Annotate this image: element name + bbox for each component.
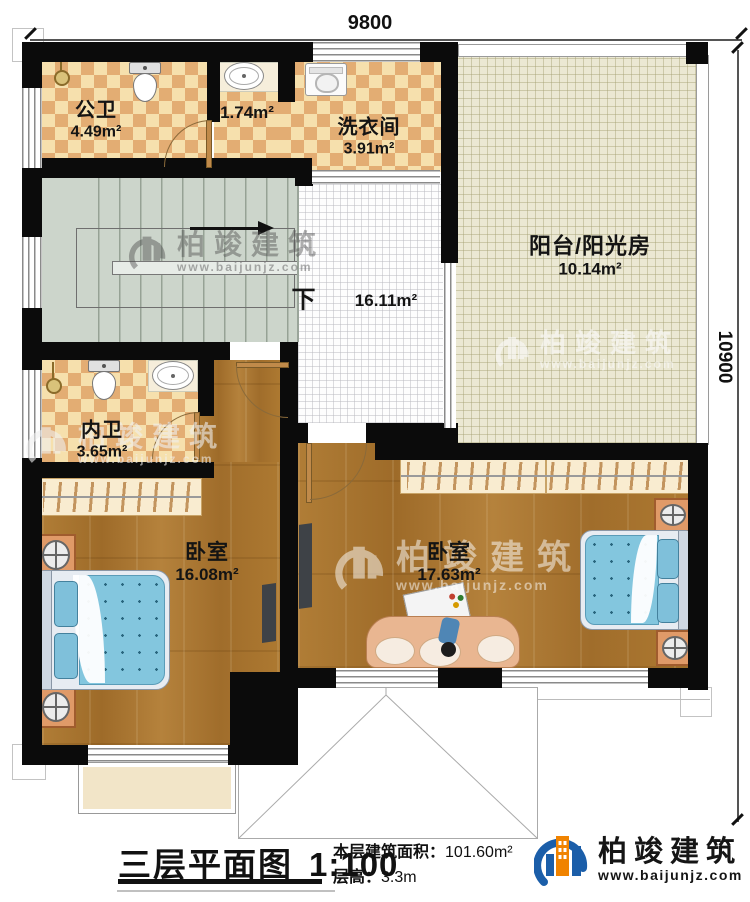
nightstand-bedroom-right-1 [654, 498, 692, 532]
room-label-balcony: 阳台/阳光房 10.14m² [529, 234, 651, 281]
wall-bedroom-right-side [688, 443, 708, 690]
room-area: 1.74m² [220, 103, 274, 123]
room-area: 3.91m² [338, 139, 401, 158]
title-underline-thin [117, 890, 335, 892]
window-public-bath [22, 88, 42, 168]
slider-hall-balcony [444, 263, 456, 428]
stair-hall-divider-line [297, 178, 299, 342]
wall-laundry-balcony [441, 42, 458, 263]
room-name: 卧室 [175, 540, 238, 565]
floor-height-value: 3.3m [381, 869, 417, 886]
window-bedroom-right-1 [336, 670, 438, 686]
balcony-wall-right [696, 55, 709, 445]
bed-headboard [41, 571, 52, 689]
slider-bedroom-left-balcony [88, 748, 228, 762]
room-name: 阳台/阳光房 [529, 234, 651, 260]
room-area: 16.11m² [355, 291, 417, 311]
room-label-hall: 16.11m² [355, 291, 417, 311]
stair-rail [112, 261, 298, 275]
stair-down-label: 下 [292, 287, 317, 316]
toilet-icon-public-bath [129, 62, 161, 102]
dimension-right-value: 10900 [713, 327, 735, 387]
bedroom-left-balcony [78, 762, 236, 814]
stair-direction-arrow-icon [258, 221, 274, 235]
tv-panel-bedroom-left [262, 583, 276, 643]
wall-innerbath-right [198, 360, 214, 416]
floor-plan: 柏竣建筑 www.baijunjz.com 柏竣建筑 www.baijunjz.… [0, 0, 750, 902]
bed-pillow [54, 581, 78, 627]
wardrobe-divider [545, 459, 547, 493]
dimension-tick [735, 27, 748, 40]
room-name: 内卫 [77, 418, 128, 442]
person-head [441, 642, 456, 657]
wall-bedroom-right-top-stub [298, 423, 308, 443]
room-name: 洗衣间 [338, 115, 401, 139]
room-area: 16.08m² [175, 565, 238, 585]
bed-pillow [657, 583, 679, 623]
plan-info: 本层建筑面积：101.60m² 层高：3.3m [333, 841, 513, 891]
floor-height-line: 层高：3.3m [333, 866, 513, 891]
room-label-laundry: 洗衣间 3.91m² [338, 115, 401, 158]
bed-bedroom-left [40, 570, 170, 690]
wall-bedroom-right-bottom-1 [298, 668, 336, 688]
wardrobe-bedroom-left [36, 478, 202, 516]
brand-logo-icon [534, 830, 588, 890]
room-label-inner-bath: 内卫 3.65m² [77, 418, 128, 461]
brand-name: 柏竣建筑 [598, 837, 743, 867]
towel-hook-icon-public-bath [54, 70, 70, 86]
room-label-bedroom-right: 卧室 17.63m² [417, 540, 480, 586]
floor-area-value: 101.60m² [445, 844, 513, 861]
window-laundry [313, 42, 420, 62]
wall-innerbath-bottom [22, 462, 214, 478]
wall-laundry-hall-stub [295, 170, 313, 186]
eave-step-bottom-right [680, 687, 712, 717]
stair-down-text: 下 [292, 287, 317, 316]
room-area: 10.14m² [529, 260, 651, 280]
eave-line-bottom [536, 699, 710, 700]
nightstand-bedroom-left-2 [36, 686, 76, 728]
slider-laundry-hall [312, 170, 440, 184]
toilet-icon-inner-bath [88, 360, 120, 400]
bed-pillow [657, 539, 679, 579]
title-underline [118, 879, 322, 884]
room-label-public-bath: 公卫 4.49m² [71, 98, 122, 141]
towel-ring-icon-inner-bath [46, 378, 62, 394]
window-stairwell [22, 237, 42, 308]
wall-bedroom-right-bottom-2 [438, 668, 502, 688]
floor-area-line: 本层建筑面积：101.60m² [333, 841, 513, 866]
room-area: 4.49m² [71, 122, 122, 141]
washing-machine-icon [305, 63, 347, 96]
sink-icon-vanity [224, 62, 264, 90]
wall-corner-block [230, 672, 298, 747]
floor-height-label: 层高： [333, 869, 381, 886]
wall-balcony-bottom [375, 443, 708, 460]
room-area: 17.63m² [417, 565, 480, 585]
brand-url: www.baijunjz.com [598, 867, 743, 883]
room-name: 卧室 [417, 540, 480, 565]
tv-panel-bedroom-right [299, 523, 312, 609]
sink-icon-inner-bath [152, 361, 194, 390]
wall-stair-bedroom [22, 342, 230, 360]
brand-logo: 柏竣建筑 www.baijunjz.com [534, 830, 743, 890]
wall-publicbath-vanity [207, 42, 220, 122]
wall-bedroom-left-bottom-1 [22, 745, 88, 765]
stair-direction-line [190, 227, 260, 230]
wall-bedroom-right-bottom-3 [648, 668, 708, 688]
window-inner-bath [22, 370, 42, 458]
sofa-cushion [375, 637, 415, 665]
room-label-bedroom-left: 卧室 16.08m² [175, 540, 238, 586]
plan-title-text: 三层平面图 [118, 846, 293, 883]
window-bedroom-right-2 [502, 670, 648, 686]
dimension-top-value: 9800 [330, 12, 410, 35]
dimension-line-top [30, 39, 742, 41]
hangers-icon [43, 482, 195, 512]
balcony-corner-post [686, 42, 708, 64]
dimension-line-right [737, 50, 739, 822]
balcony-wall-top [458, 44, 688, 57]
room-label-vanity: 1.74m² [220, 103, 274, 123]
room-name: 公卫 [71, 98, 122, 122]
wall-vanity-laundry [278, 42, 295, 102]
wall-bedroom-left-bottom-2 [228, 745, 298, 765]
wall-balcony-slider-pier [441, 428, 458, 460]
wardrobe-bedroom-right [400, 458, 690, 494]
bed-bedroom-right [580, 530, 690, 630]
room-area: 3.65m² [77, 442, 128, 461]
floor-area-label: 本层建筑面积： [333, 844, 445, 861]
sofa-cushion [477, 635, 515, 663]
bed-pillow [54, 633, 78, 679]
